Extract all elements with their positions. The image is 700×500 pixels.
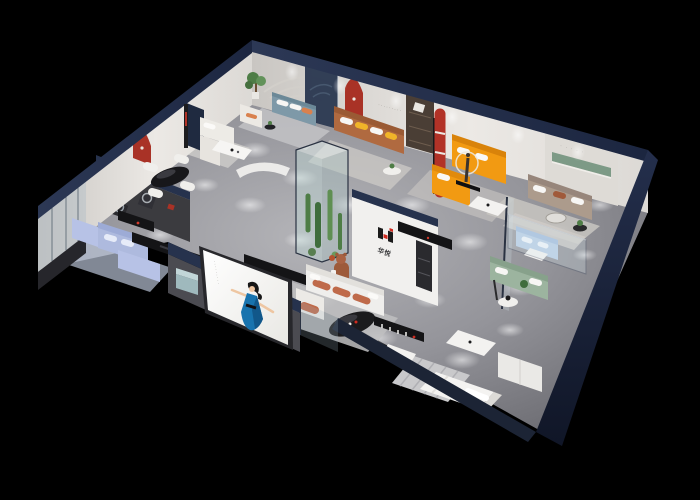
pillow xyxy=(107,237,114,239)
pillow xyxy=(124,242,131,244)
atrium-right-face xyxy=(322,150,348,262)
atrium-figure xyxy=(329,255,335,261)
glass-atrium xyxy=(296,141,348,262)
terracotta-cushion xyxy=(336,290,347,294)
pillow xyxy=(532,281,539,283)
rust-pillow xyxy=(556,194,563,196)
terracotta-cushion xyxy=(356,297,367,301)
pillow xyxy=(536,188,543,190)
red-accent-art xyxy=(168,206,174,208)
table-plant xyxy=(390,164,395,169)
console-red-accent xyxy=(137,222,140,225)
orange-lumbar-pillow xyxy=(304,110,310,112)
yellow-pillow xyxy=(388,135,394,137)
bed-pillow xyxy=(478,395,486,398)
armchair-cushion xyxy=(248,115,255,117)
pillow xyxy=(498,270,505,272)
dining-chair xyxy=(152,192,159,194)
pillow xyxy=(370,295,376,297)
table-red-item xyxy=(355,321,358,324)
pillow xyxy=(373,130,380,132)
pillow xyxy=(574,200,581,202)
woman-face xyxy=(249,286,255,292)
pillow xyxy=(292,106,299,108)
arch-figurine-left xyxy=(140,146,143,149)
pillow xyxy=(279,102,286,104)
showroom-render: ········· · · · · · xyxy=(0,0,700,500)
pillow xyxy=(206,125,213,127)
figure-head xyxy=(466,153,470,157)
table-decor xyxy=(237,151,239,153)
walnut-art-frame xyxy=(414,106,424,109)
black-vase xyxy=(506,296,511,301)
yellow-pillow xyxy=(358,125,365,127)
pillow xyxy=(478,156,485,158)
pillow xyxy=(440,176,447,178)
glass-coffee-table xyxy=(546,213,566,223)
table-decor xyxy=(469,341,472,344)
table-decor xyxy=(231,149,234,152)
pillow xyxy=(312,276,318,278)
dining-chair xyxy=(184,185,191,187)
showroom-screenshot: ········· · · · · · xyxy=(0,0,700,500)
table-decor xyxy=(487,204,490,207)
figure-sculpture xyxy=(466,158,468,182)
walnut-shelf-panel xyxy=(406,93,434,154)
pillow xyxy=(343,120,350,122)
rack-red-item xyxy=(413,336,416,339)
side-table-plant xyxy=(268,121,272,125)
arch-figurine-top xyxy=(352,97,355,100)
sofa-plant xyxy=(520,280,528,288)
dining-chair xyxy=(178,158,185,160)
black-side-table xyxy=(265,124,276,129)
dining-chair xyxy=(147,166,154,168)
logo-wall-niche xyxy=(416,240,432,292)
side-plant xyxy=(577,220,583,226)
terracotta-cushion xyxy=(316,283,327,287)
console-red-light xyxy=(427,237,429,239)
